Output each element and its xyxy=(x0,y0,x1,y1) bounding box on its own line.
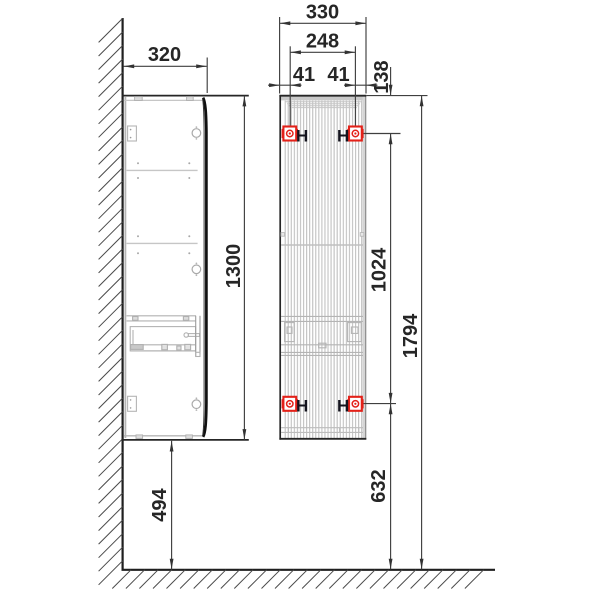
svg-text:41: 41 xyxy=(327,64,349,86)
svg-text:632: 632 xyxy=(368,469,390,502)
svg-text:330: 330 xyxy=(306,2,339,24)
svg-text:320: 320 xyxy=(148,44,181,66)
svg-text:138: 138 xyxy=(371,60,393,93)
svg-text:1794: 1794 xyxy=(400,313,422,358)
svg-text:H: H xyxy=(296,397,308,416)
svg-text:248: 248 xyxy=(306,31,339,53)
svg-text:H: H xyxy=(296,126,308,145)
svg-text:41: 41 xyxy=(293,64,315,86)
svg-text:H: H xyxy=(337,126,349,145)
svg-text:1024: 1024 xyxy=(369,247,391,292)
svg-text:H: H xyxy=(337,397,349,416)
svg-text:494: 494 xyxy=(149,487,171,521)
svg-text:1300: 1300 xyxy=(223,244,245,289)
